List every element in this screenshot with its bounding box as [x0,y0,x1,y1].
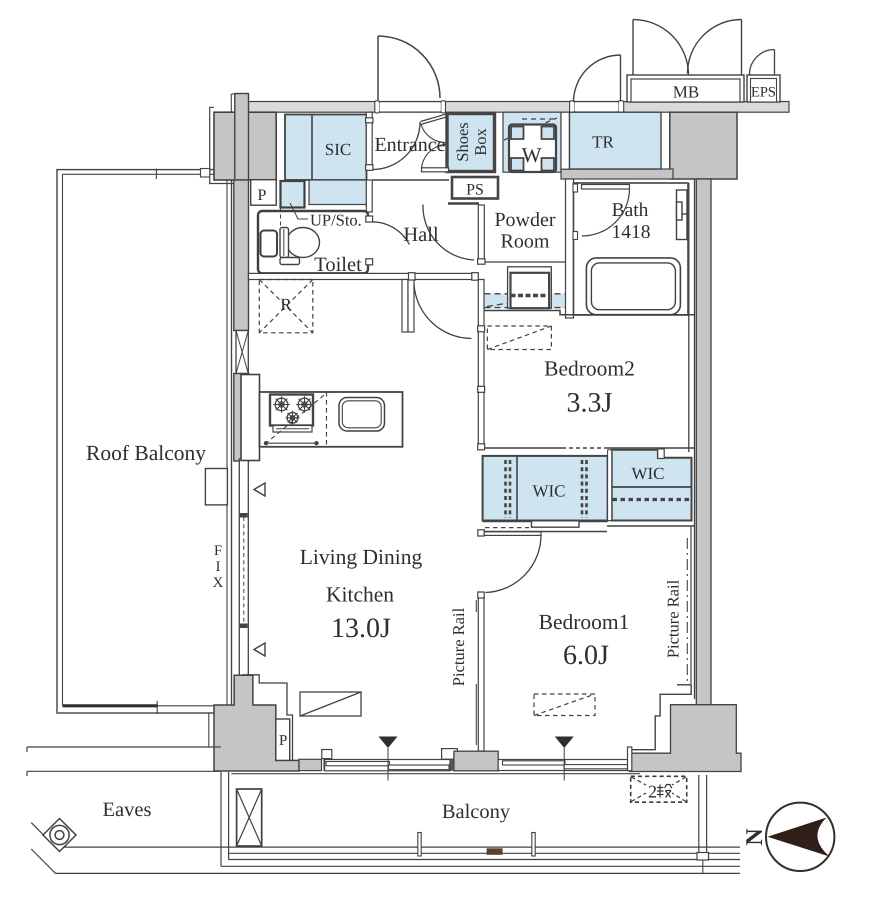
svg-text:EPS: EPS [751,85,776,101]
svg-text:SIC: SIC [325,140,351,159]
svg-text:F: F [214,543,222,559]
svg-text:MB: MB [673,83,699,102]
svg-text:N: N [742,828,768,846]
svg-text:Bedroom2: Bedroom2 [544,357,635,381]
svg-text:R: R [280,295,292,314]
svg-text:Bath: Bath [612,200,649,221]
svg-text:1418: 1418 [612,222,651,243]
svg-text:Box: Box [471,128,490,156]
svg-text:I: I [216,559,221,575]
svg-text:Room: Room [501,231,550,253]
svg-text:Balcony: Balcony [442,801,511,823]
svg-text:Eaves: Eaves [103,799,152,821]
svg-text:P: P [279,733,287,749]
svg-text:TR: TR [592,133,614,152]
svg-text:W: W [522,143,542,167]
svg-text:Living Dining: Living Dining [300,545,423,569]
svg-text:Picture Rail: Picture Rail [664,579,683,658]
svg-text:6.0J: 6.0J [563,640,609,671]
svg-text:Toilet: Toilet [314,254,362,276]
svg-text:Kitchen: Kitchen [326,583,394,607]
svg-text:UP/Sto.: UP/Sto. [310,211,362,230]
svg-text:Bedroom1: Bedroom1 [539,610,630,634]
svg-text:WIC: WIC [631,464,664,483]
svg-text:PS: PS [466,182,484,199]
svg-text:Powder: Powder [494,209,555,231]
svg-text:Shoes: Shoes [453,122,472,161]
svg-text:Roof Balcony: Roof Balcony [86,441,206,465]
svg-text:Entrance: Entrance [374,134,445,156]
svg-text:Hall: Hall [403,224,439,246]
svg-text:P: P [258,187,267,204]
svg-text:X: X [213,575,224,591]
svg-text:WIC: WIC [532,482,565,501]
svg-text:3.3J: 3.3J [567,388,613,419]
svg-text:2: 2 [648,782,657,802]
svg-text:13.0J: 13.0J [331,613,391,644]
svg-text:Picture Rail: Picture Rail [449,607,468,686]
